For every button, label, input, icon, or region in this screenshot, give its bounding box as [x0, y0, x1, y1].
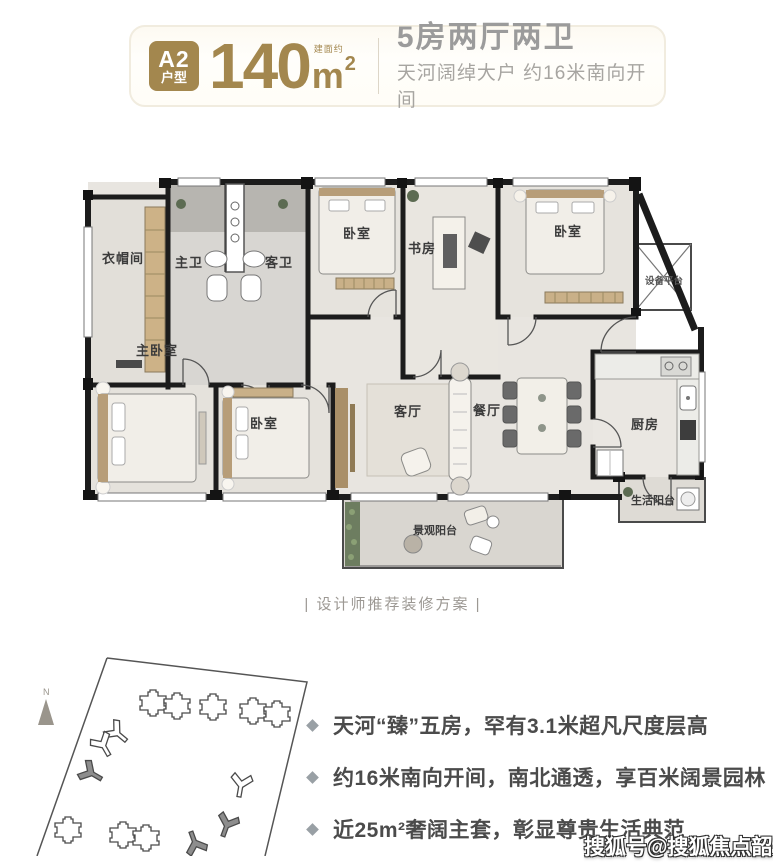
room-label-kitchen: 厨房	[631, 417, 659, 432]
room-label-master-bedroom: 主卧室	[136, 343, 178, 358]
floor-plan: 衣帽间 主卫 客卫 卧室 书房 卧室 设备平台 主卧室 卧室 客厅 餐厅 厨房 …	[83, 172, 713, 584]
plumbing-shaft	[226, 184, 244, 272]
sink-icon	[207, 275, 227, 301]
plan-caption: | 设计师推荐装修方案 |	[228, 593, 558, 614]
master-bed-icon	[96, 382, 206, 494]
building-footprints	[55, 690, 290, 856]
svg-text:N: N	[43, 687, 50, 697]
area-note: 建面约	[314, 42, 344, 55]
wardrobe-icon	[233, 388, 293, 397]
unit-code: A2	[158, 47, 189, 71]
area-number: 140	[209, 39, 310, 93]
room-label-service-balcony: 生活阳台	[631, 493, 675, 507]
diamond-bullet-icon	[306, 823, 319, 836]
site-plan-svg: N	[25, 645, 315, 856]
room-label-bedroom-bottom: 卧室	[250, 416, 278, 431]
unit-code-label: 户型	[161, 71, 187, 85]
toilet-icon	[205, 251, 227, 267]
plant-icon	[278, 199, 288, 209]
room-label-master-bath: 主卫	[175, 255, 203, 270]
feature-text: 天河“臻”五房，罕有3.1米超凡尺度层高	[333, 710, 708, 740]
room-label-guest-bath: 客卫	[265, 255, 293, 270]
feature-text: 约16米南向开间，南北通透，享百米阔景园林	[333, 762, 766, 792]
unit-area: 140 建面约m2	[209, 39, 356, 93]
sink-icon	[241, 275, 261, 301]
area-superscript: 2	[345, 53, 356, 75]
page-title: 5房两厅两卫	[397, 21, 664, 54]
plant-icon	[176, 199, 186, 209]
toilet-icon	[243, 251, 265, 267]
wardrobe-icon	[336, 278, 394, 289]
room-label-living: 客厅	[394, 404, 422, 419]
site-plan: N	[25, 645, 315, 856]
tv-wall	[335, 388, 348, 488]
room-label-bedroom-top: 卧室	[343, 226, 371, 241]
watermark: 搜狐号@搜狐焦点韶关站	[584, 831, 773, 861]
washer-icon	[677, 488, 699, 510]
list-item: 天河“臻”五房，罕有3.1米超凡尺度层高	[308, 710, 773, 740]
diamond-bullet-icon	[306, 771, 319, 784]
diamond-bullet-icon	[306, 719, 319, 732]
floor-plan-svg: 衣帽间 主卫 客卫 卧室 书房 卧室 设备平台 主卧室 卧室 客厅 餐厅 厨房 …	[83, 172, 713, 584]
room-label-dining: 餐厅	[472, 403, 501, 418]
room-label-equipment: 设备平台	[645, 275, 684, 287]
plant-icon	[407, 190, 419, 202]
page-subtitle: 天河阔绰大户 约16米南向开间	[397, 58, 664, 112]
room-label-study: 书房	[408, 241, 436, 256]
area-unit: m	[312, 55, 344, 96]
room-label-view-balcony: 景观阳台	[412, 523, 457, 537]
sofa-icon	[449, 363, 471, 495]
bed-icon	[222, 386, 309, 490]
north-arrow-icon: N	[38, 687, 54, 725]
header-divider	[378, 38, 379, 94]
list-item: 约16米南向开间，南北通透，享百米阔景园林	[308, 762, 773, 792]
wardrobe-icon	[545, 292, 623, 303]
desk-icon	[433, 217, 465, 289]
unit-header-card: A2 户型 140 建面约m2 5房两厅两卫 天河阔绰大户 约16米南向开间	[129, 25, 666, 107]
room-label-bedroom-top-right: 卧室	[554, 224, 582, 239]
unit-type-badge: A2 户型	[149, 41, 199, 91]
room-label-closet: 衣帽间	[102, 251, 144, 266]
balcony-greenery	[345, 502, 360, 566]
dining-table-icon	[503, 378, 581, 454]
